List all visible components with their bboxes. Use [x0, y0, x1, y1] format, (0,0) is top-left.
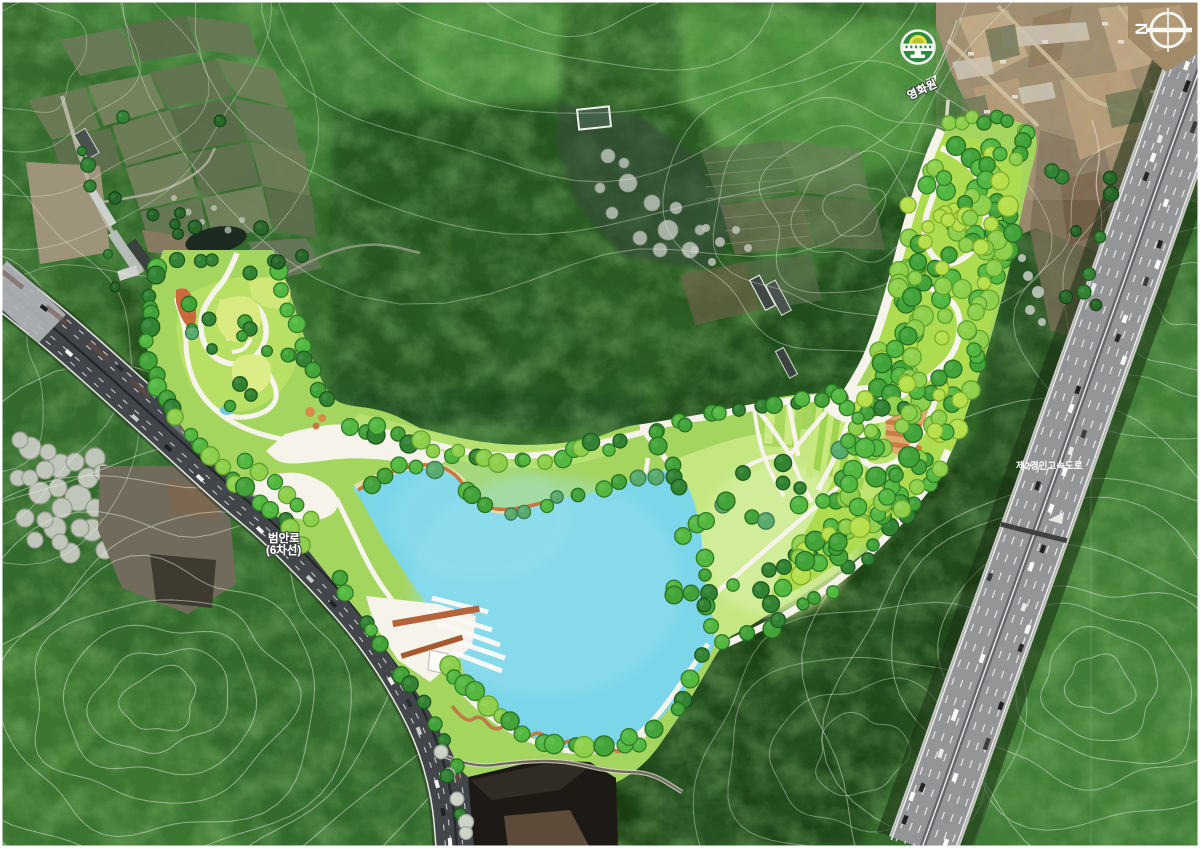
- svg-text:(6차선): (6차선): [266, 543, 301, 557]
- svg-text:범안로: 범안로: [268, 531, 300, 545]
- svg-text:제2경인고속도로: 제2경인고속도로: [1016, 460, 1083, 472]
- svg-text:N: N: [1132, 23, 1151, 35]
